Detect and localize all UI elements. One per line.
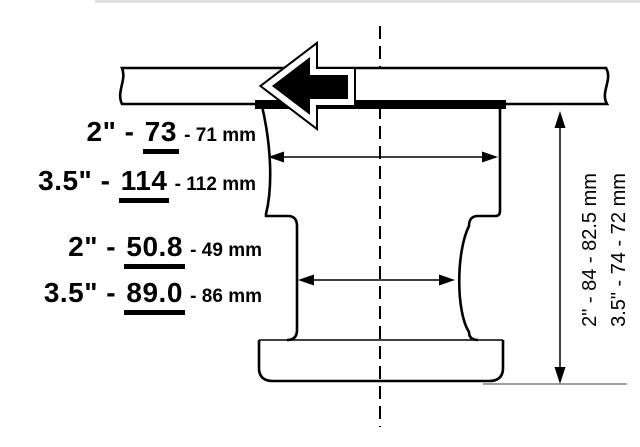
spool-right-outline <box>459 106 500 340</box>
upper-width-labels: 2" - 73 - 71 mm 3.5" - 114 - 112 mm <box>0 110 256 208</box>
size-prefix: 3.5" - <box>38 165 119 196</box>
size-prefix: 2" - <box>68 231 124 262</box>
inch-value: 73 <box>143 118 179 154</box>
height-labels: 2" - 84 - 82.5 mm 3.5" - 74 - 72 mm <box>576 155 634 345</box>
inch-value: 114 <box>119 167 170 203</box>
height-row-35in: 3.5" - 74 - 72 mm <box>605 155 634 345</box>
inch-value: 50.8 <box>124 233 185 269</box>
upper-width-dimension-arrow <box>268 152 498 163</box>
hub-width-labels: 2" - 50.8 - 49 mm 3.5" - 89.0 - 86 mm <box>0 226 262 318</box>
hub-width-row-2in: 2" - 50.8 - 49 mm <box>0 226 262 272</box>
diagram-page: 2" - 73 - 71 mm 3.5" - 114 - 112 mm 2" -… <box>0 0 640 447</box>
metric-value: - 112 mm <box>169 174 256 195</box>
inch-value: 89.0 <box>124 279 185 315</box>
metric-value: - 49 mm <box>185 240 262 261</box>
upper-width-row-2in: 2" - 73 - 71 mm <box>0 110 256 159</box>
height-row-2in: 2" - 84 - 82.5 mm <box>576 155 605 345</box>
upper-width-row-35in: 3.5" - 114 - 112 mm <box>0 159 256 208</box>
size-prefix: 2" - <box>87 116 143 147</box>
metric-value: - 71 mm <box>179 125 256 146</box>
hub-width-dimension-arrow <box>298 275 455 286</box>
height-dimension-arrow <box>555 111 566 384</box>
spool-left-outline <box>262 106 297 340</box>
metric-value: - 86 mm <box>185 286 262 307</box>
tape-strip <box>120 68 608 104</box>
diagram-canvas <box>0 0 640 447</box>
hub-width-row-35in: 3.5" - 89.0 - 86 mm <box>0 272 262 318</box>
tape-direction-arrow-icon <box>267 51 351 121</box>
size-prefix: 3.5" - <box>44 277 125 308</box>
